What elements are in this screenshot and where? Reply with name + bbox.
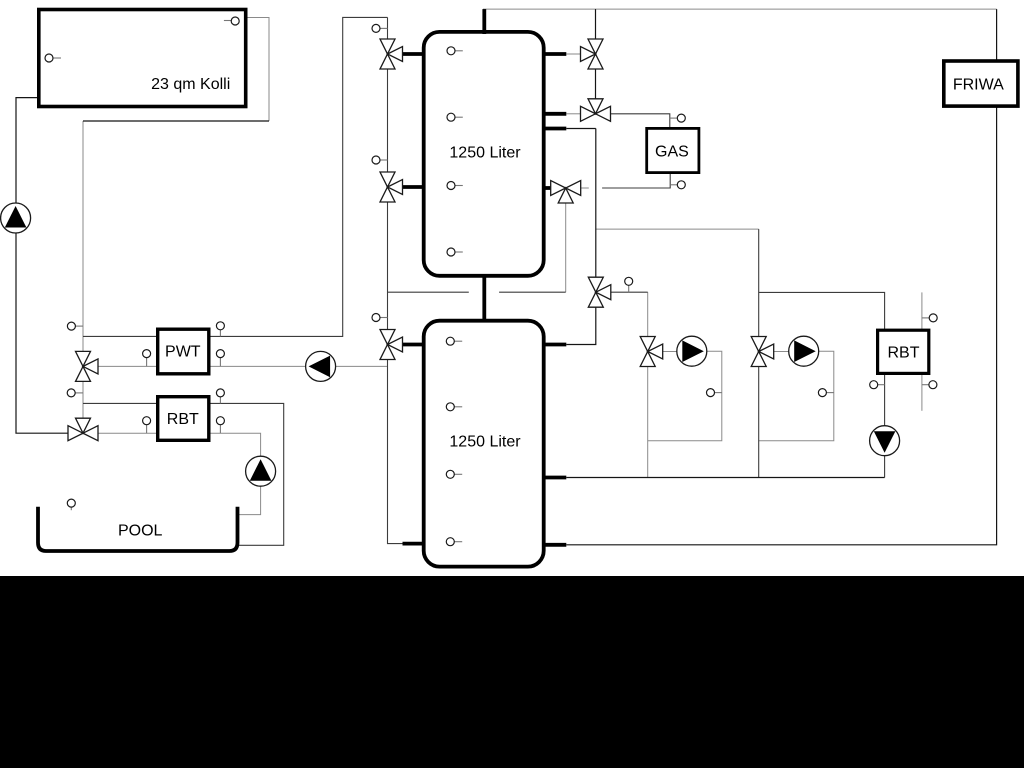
svg-text:POOL: POOL <box>118 522 163 539</box>
svg-text:1250 Liter: 1250 Liter <box>449 434 521 451</box>
svg-text:RBT: RBT <box>888 345 920 362</box>
svg-text:PWT: PWT <box>165 344 201 361</box>
svg-text:GAS: GAS <box>655 144 689 161</box>
svg-text:FRIWA: FRIWA <box>953 77 1004 94</box>
svg-text:23 qm Kolli: 23 qm Kolli <box>151 76 230 93</box>
svg-text:RBT: RBT <box>167 411 199 428</box>
svg-text:1250 Liter: 1250 Liter <box>449 145 521 162</box>
